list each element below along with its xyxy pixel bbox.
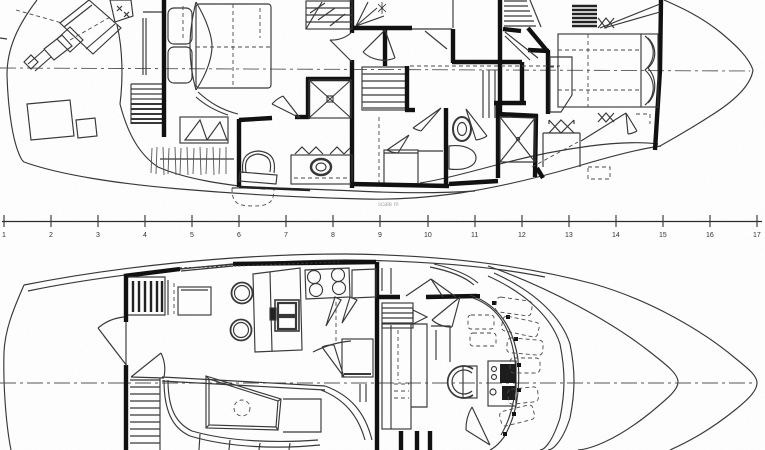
svg-text:16: 16 bbox=[706, 232, 714, 239]
svg-text:13: 13 bbox=[565, 232, 573, 239]
svg-text:14: 14 bbox=[612, 232, 620, 239]
svg-text:5: 5 bbox=[190, 232, 194, 239]
svg-text:12: 12 bbox=[518, 232, 526, 239]
svg-text:10: 10 bbox=[424, 232, 432, 239]
svg-text:2: 2 bbox=[49, 232, 53, 239]
svg-text:8: 8 bbox=[331, 232, 335, 239]
svg-text:11: 11 bbox=[471, 232, 478, 239]
svg-text:17: 17 bbox=[753, 232, 761, 239]
svg-text:4: 4 bbox=[143, 232, 147, 239]
svg-text:15: 15 bbox=[659, 232, 667, 239]
svg-text:scale m: scale m bbox=[378, 202, 399, 208]
svg-text:7: 7 bbox=[284, 232, 288, 239]
svg-text:9: 9 bbox=[378, 232, 382, 239]
svg-text:6: 6 bbox=[237, 232, 241, 239]
svg-text:1: 1 bbox=[2, 232, 6, 239]
svg-text:3: 3 bbox=[96, 232, 100, 239]
